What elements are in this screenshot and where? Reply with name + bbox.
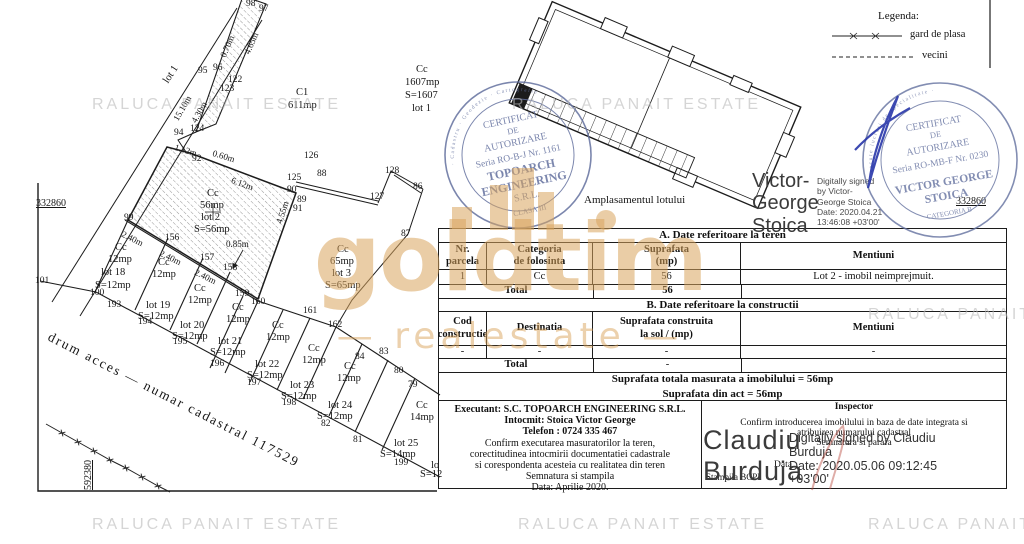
map-label: 12mp (152, 270, 176, 281)
map-label: lot 22 (255, 360, 279, 371)
map-label: lot 23 (290, 381, 314, 392)
map-label: Cc (344, 362, 356, 373)
fence-line (46, 424, 170, 492)
map-label: Cc (416, 65, 428, 76)
watermark-raluca: RALUCA PANAIT ESTATE (868, 516, 1024, 534)
map-label: 97 (259, 5, 269, 15)
map-label: 158 (223, 264, 237, 274)
map-label: 86 (413, 183, 423, 193)
map-label: 126 (304, 152, 318, 162)
map-label: lot 20 (180, 321, 204, 332)
watermark-goldtim: goldtim (300, 212, 720, 306)
map-label: 56mp (200, 201, 224, 212)
executant-block: Executant: S.C. TOPOARCH ENGINEERING S.R… (439, 401, 701, 488)
map-label: 124 (190, 125, 204, 135)
map-label: 12mp (226, 315, 250, 326)
map-label: 94 (174, 129, 184, 139)
cadastral-document-sheet: 9897959612212312494921261258890899199156… (0, 0, 1024, 544)
map-label: 79 (408, 381, 418, 391)
executant-author: Intocmit: Stoica Victor George (443, 415, 697, 426)
table-b-total-label: Total (439, 359, 593, 372)
map-label: 592380 (84, 460, 94, 490)
map-label: 332860 (36, 199, 66, 209)
executant-confirmation: Confirm executarea masuratorilor la tere… (443, 438, 697, 494)
map-label: S=12mp (172, 332, 208, 343)
map-label: Cc (416, 401, 428, 412)
map-label: 12mp (108, 255, 132, 266)
watermark-raluca: RALUCA PANAIT ESTATE (518, 516, 767, 534)
map-label: 99 (124, 214, 134, 224)
map-label: S=12mp (281, 392, 317, 403)
map-label: 12mp (302, 356, 326, 367)
legend-fence-label: gard de plasa (910, 29, 965, 40)
map-label: 157 (200, 254, 214, 264)
map-label: 12mp (188, 296, 212, 307)
map-label: lot 21 (218, 337, 242, 348)
map-label: 88 (317, 170, 327, 180)
map-label: S=12mp (247, 371, 283, 382)
map-label: 12mp (266, 333, 290, 344)
map-label: 125 (287, 174, 301, 184)
table-a-header: Mentiuni (740, 243, 1006, 269)
map-label: S=14mp (380, 450, 416, 461)
map-label: 12mp (337, 374, 361, 385)
map-label: 96 (213, 64, 223, 74)
map-label: 156 (165, 234, 179, 244)
map-label: Cc (232, 303, 244, 314)
inspector-title: Inspector (702, 402, 1006, 412)
map-label: 0.85m (226, 240, 249, 249)
signature-burduja-details: Digitally signed by Claudiu Burduja Date… (789, 432, 937, 487)
map-label: lot 19 (146, 301, 170, 312)
map-label: S=12mp (138, 312, 174, 323)
map-label: 98 (246, 0, 256, 10)
watermark-raluca: RALUCA PANAIT ESTATE (512, 96, 761, 114)
map-label: 95 (198, 67, 208, 77)
map-label: lot 24 (328, 401, 352, 412)
map-label: 14mp (410, 413, 434, 424)
map-label: S=12mp (317, 412, 353, 423)
map-label: Cc (158, 258, 170, 269)
watermark-realestate: — realestate — (310, 316, 710, 357)
map-label: 127 (370, 193, 384, 203)
map-label: Cc (115, 243, 127, 254)
signature-stoica-name: Victor- George Stoica (752, 170, 819, 237)
map-label: S=56mp (194, 225, 230, 236)
map-label: 90 (287, 186, 297, 196)
map-label: 160 (251, 298, 265, 308)
table-a-total-mentiuni (741, 285, 1006, 298)
map-label: S=12mp (95, 281, 131, 292)
map-label: lot 25 (394, 439, 418, 450)
watermark-raluca: RALUCA PANAIT ESTATE (92, 516, 341, 534)
legend-title: Legenda: (878, 10, 919, 22)
map-label: 1607mp (405, 78, 439, 89)
table-b-cell: - (740, 346, 1006, 358)
map-label: Cc (272, 321, 284, 332)
map-label: 193 (107, 301, 121, 311)
map-label: 128 (385, 167, 399, 177)
executant-company: Executant: S.C. TOPOARCH ENGINEERING S.R… (443, 404, 697, 415)
area-summary-line2: Suprafata din act = 56mp (663, 387, 783, 401)
executant-phone: Telefon : 0724 335 467 (443, 426, 697, 437)
map-label: 196 (210, 360, 224, 370)
table-b-total-value: - (593, 359, 741, 372)
map-label: 123 (220, 85, 234, 95)
map-label: Cc (194, 284, 206, 295)
area-summary-line1: Suprafata totala masurata a imobilului =… (612, 372, 833, 386)
map-label: 332860 (956, 197, 986, 207)
legend-graphics (832, 33, 914, 57)
map-label: 101 (35, 277, 49, 287)
map-label: 80 (394, 367, 404, 377)
legend-vecini-label: vecini (922, 50, 948, 61)
map-label: 81 (353, 436, 363, 446)
area-summary: Suprafata totala masurata a imobilului =… (439, 373, 1006, 400)
map-label: S=1607 (405, 91, 438, 102)
watermark-raluca: RALUCA PANAIT ESTATE (868, 306, 1024, 324)
table-a-cell: Lot 2 - imobil neimprejmuit. (740, 270, 1006, 284)
map-label: Cc (207, 189, 219, 200)
map-label: lot 1 (412, 104, 431, 115)
map-label: S=12mp (210, 348, 246, 359)
watermark-raluca: RALUCA PANAIT ESTATE (92, 96, 341, 114)
signature-stoica-details: Digitally signed by Victor- George Stoic… (817, 176, 882, 228)
map-label: lot 18 (101, 268, 125, 279)
map-label: lot 2 (201, 213, 220, 224)
table-b-total-mentiuni (741, 359, 1006, 372)
map-label: 159 (235, 290, 249, 300)
